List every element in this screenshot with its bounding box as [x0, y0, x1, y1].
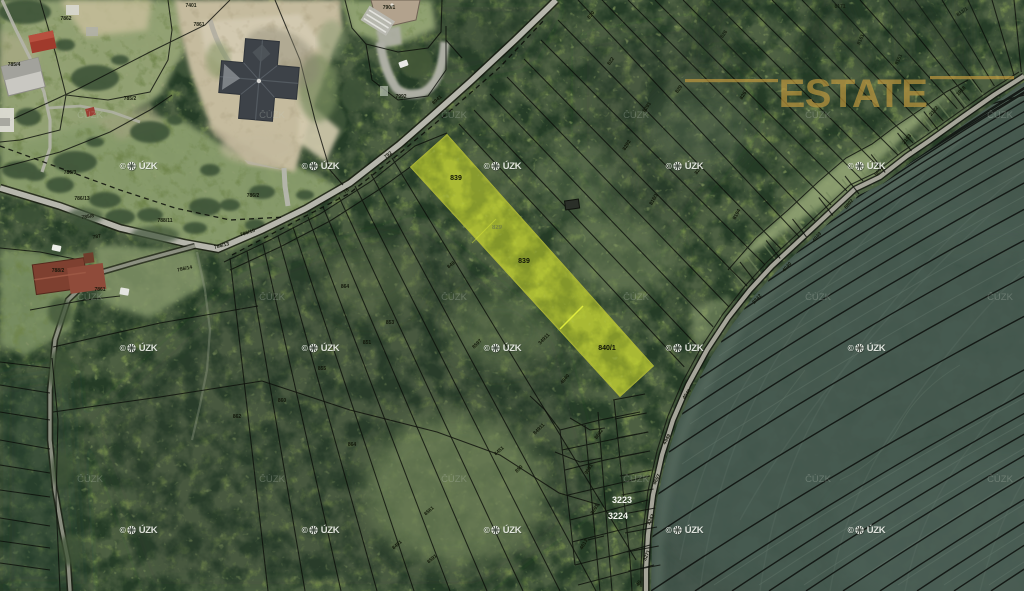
svg-text:©: ©: [302, 343, 309, 353]
svg-text:©: ©: [666, 343, 673, 353]
svg-text:860: 860: [278, 398, 287, 404]
svg-text:ČÚZK: ČÚZK: [259, 292, 286, 303]
svg-text:ÚZK: ÚZK: [867, 342, 886, 354]
svg-text:855: 855: [318, 366, 327, 372]
svg-text:ČÚZK: ČÚZK: [987, 292, 1014, 303]
svg-text:ÚZK: ÚZK: [139, 160, 158, 172]
svg-text:851: 851: [363, 340, 372, 346]
svg-text:ÚZK: ÚZK: [867, 160, 886, 172]
svg-text:ČÚZK: ČÚZK: [441, 292, 468, 303]
svg-text:7862: 7862: [60, 16, 71, 22]
svg-text:864: 864: [341, 284, 350, 290]
svg-text:840/1: 840/1: [598, 345, 616, 352]
svg-text:3223: 3223: [612, 495, 632, 505]
svg-text:829: 829: [492, 225, 503, 231]
svg-text:©: ©: [302, 161, 309, 171]
svg-text:ÚZK: ÚZK: [503, 342, 522, 354]
svg-text:ESTATE: ESTATE: [779, 72, 928, 116]
svg-text:ÚZK: ÚZK: [503, 160, 522, 172]
svg-text:786/13: 786/13: [74, 196, 90, 202]
svg-text:ČÚZK: ČÚZK: [623, 110, 650, 121]
svg-text:839: 839: [518, 258, 530, 265]
svg-text:ČÚZK: ČÚZK: [441, 474, 468, 485]
svg-text:©: ©: [484, 161, 491, 171]
svg-text:©: ©: [120, 343, 127, 353]
svg-text:ÚZK: ÚZK: [685, 160, 704, 172]
svg-text:©: ©: [120, 161, 127, 171]
svg-text:ČÚZK: ČÚZK: [259, 110, 286, 121]
svg-text:©: ©: [848, 161, 855, 171]
svg-text:©: ©: [302, 525, 309, 535]
svg-text:864: 864: [348, 442, 357, 448]
svg-text:ČÚZK: ČÚZK: [623, 292, 650, 303]
svg-text:©: ©: [666, 525, 673, 535]
svg-text:7992: 7992: [395, 94, 406, 100]
svg-text:ÚZK: ÚZK: [321, 342, 340, 354]
svg-text:3224: 3224: [608, 511, 628, 521]
svg-text:ÚZK: ÚZK: [503, 524, 522, 536]
svg-text:853: 853: [386, 320, 395, 326]
svg-text:839: 839: [450, 175, 462, 182]
svg-text:ÚZK: ÚZK: [139, 342, 158, 354]
svg-text:785/2: 785/2: [124, 96, 137, 102]
svg-text:©: ©: [120, 525, 127, 535]
svg-text:©: ©: [848, 525, 855, 535]
svg-text:ČÚZK: ČÚZK: [623, 474, 650, 485]
svg-text:785/4: 785/4: [8, 62, 21, 68]
svg-text:ÚZK: ÚZK: [685, 524, 704, 536]
svg-text:ÚZK: ÚZK: [321, 524, 340, 536]
svg-text:862: 862: [233, 414, 242, 420]
svg-text:ČÚZK: ČÚZK: [805, 474, 832, 485]
svg-text:7861: 7861: [193, 22, 204, 28]
svg-text:©: ©: [484, 343, 491, 353]
svg-text:786/3: 786/3: [64, 170, 77, 176]
svg-text:©: ©: [484, 525, 491, 535]
svg-text:ČÚZK: ČÚZK: [441, 110, 468, 121]
svg-text:ČÚZK: ČÚZK: [77, 474, 104, 485]
svg-text:ČÚZK: ČÚZK: [77, 110, 104, 121]
svg-text:ČÚZK: ČÚZK: [805, 292, 832, 303]
svg-text:ČÚZK: ČÚZK: [259, 474, 286, 485]
svg-text:ÚZK: ÚZK: [139, 524, 158, 536]
svg-text:788/11: 788/11: [157, 218, 172, 224]
svg-text:786/2: 786/2: [247, 193, 260, 199]
svg-text:ÚZK: ÚZK: [867, 524, 886, 536]
svg-text:©: ©: [666, 161, 673, 171]
svg-text:7401: 7401: [185, 3, 196, 9]
svg-text:790/1: 790/1: [383, 5, 396, 11]
svg-text:ČÚZK: ČÚZK: [987, 110, 1014, 121]
svg-text:ČÚZK: ČÚZK: [77, 292, 104, 303]
svg-text:788/2: 788/2: [52, 268, 65, 274]
svg-text:ÚZK: ÚZK: [685, 342, 704, 354]
svg-text:ÚZK: ÚZK: [321, 160, 340, 172]
svg-text:©: ©: [848, 343, 855, 353]
svg-text:ČÚZK: ČÚZK: [987, 474, 1014, 485]
